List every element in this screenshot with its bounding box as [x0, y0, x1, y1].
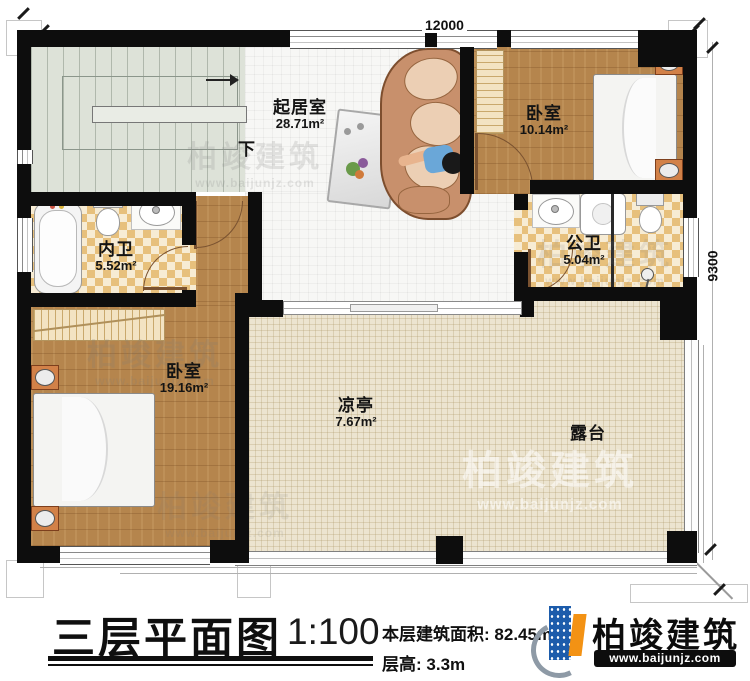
sofa-armrest	[398, 186, 450, 214]
wall	[460, 47, 474, 194]
floor-height-line: 层高: 3.3m	[382, 650, 465, 675]
wall	[497, 30, 511, 47]
wall	[17, 293, 196, 307]
window	[17, 218, 33, 272]
wall	[235, 293, 249, 540]
room-label-terrace: 露台	[548, 424, 628, 443]
wall	[210, 540, 249, 563]
wall	[514, 194, 528, 210]
terrace-outer-line-1	[40, 567, 697, 568]
door-leaf	[475, 133, 478, 190]
room-name: 内卫	[72, 240, 160, 259]
table-flowers	[355, 170, 364, 179]
floor-area-label: 本层建筑面积:	[382, 625, 490, 644]
stair-handrail	[92, 106, 247, 123]
floor-height-value: 3.3m	[426, 655, 465, 674]
floor-height-label: 层高:	[382, 655, 422, 674]
room-area: 28.71m²	[252, 117, 348, 132]
wall	[182, 192, 196, 245]
wall	[17, 47, 31, 150]
corner-annotation-box-terrace	[630, 584, 748, 603]
nightstand-lamp-icon	[35, 510, 55, 527]
title-underline-thick	[48, 656, 373, 661]
wall	[17, 192, 196, 206]
wall	[17, 272, 31, 546]
room-name: 凉亭	[308, 396, 404, 415]
dimension-top: 12000	[422, 17, 467, 33]
bath-public-door-threshold	[514, 210, 528, 252]
terrace-post	[667, 531, 697, 563]
room-name: 卧室	[496, 104, 592, 123]
dimension-line-right	[712, 42, 713, 560]
room-area: 5.52m²	[72, 259, 160, 274]
wall	[514, 287, 683, 301]
terrace-outer-line-2	[120, 573, 697, 574]
room-label-bath-inner: 内卫 5.52m²	[72, 240, 160, 274]
window	[511, 30, 638, 49]
room-name: 卧室	[136, 362, 232, 381]
nightstand-lamp-icon	[35, 369, 55, 386]
room-label-bedroom-top: 卧室 10.14m²	[496, 104, 592, 138]
wall	[235, 300, 283, 317]
title-underline-thin	[48, 664, 373, 666]
room-area: 7.67m²	[308, 415, 404, 430]
dimension-tick	[17, 7, 30, 20]
room-label-bedroom-left: 卧室 19.16m²	[136, 362, 232, 396]
stairs-down-label: 下	[234, 140, 260, 159]
nightstand	[655, 159, 683, 182]
room-name: 起居室	[252, 98, 348, 117]
terrace-post	[436, 536, 463, 564]
room-name: 露台	[548, 424, 628, 443]
wall	[660, 301, 697, 340]
wall	[248, 192, 262, 314]
window	[290, 30, 425, 49]
dimension-right: 9300	[705, 247, 721, 284]
room-label-living: 起居室 28.71m²	[252, 98, 348, 132]
wall	[530, 180, 683, 194]
terrace-railing-right	[684, 340, 699, 553]
toilet-bowl	[639, 206, 662, 233]
stair-direction-arrow	[206, 79, 232, 81]
nightstand-lamp-icon	[659, 163, 679, 178]
sliding-door-panel	[350, 304, 438, 312]
logo-building-icon	[549, 606, 571, 660]
floor-plan-page: 柏竣建筑 www.baijunjz.com 柏竣建筑 www.baijunjz.…	[0, 0, 750, 681]
wall	[17, 30, 290, 47]
table-cup	[357, 123, 364, 130]
toilet-bowl	[96, 208, 120, 236]
window	[17, 150, 33, 164]
sink-drain	[551, 205, 559, 213]
terrace-outer-line-right	[703, 345, 704, 563]
wall	[520, 300, 534, 317]
bed-blanket	[622, 78, 656, 178]
toilet-tank	[636, 193, 664, 206]
room-name: 公卫	[540, 234, 628, 253]
dimension-tick	[704, 543, 717, 556]
room-area: 10.14m²	[496, 123, 592, 138]
room-area: 19.16m²	[136, 381, 232, 396]
stair-arrow-head-icon	[230, 74, 239, 86]
wall	[17, 164, 31, 218]
room-label-bath-public: 公卫 5.04m²	[540, 234, 628, 268]
plan-scale: 1:100	[287, 611, 380, 653]
wall	[638, 30, 697, 67]
window	[60, 546, 210, 565]
brand-url: www.baijunjz.com	[594, 650, 736, 667]
nightstand	[31, 506, 59, 531]
room-area: 5.04m²	[540, 253, 628, 268]
table-flowers	[358, 158, 368, 168]
wall	[683, 277, 697, 301]
nightstand	[31, 365, 59, 390]
window	[683, 218, 699, 277]
wall	[17, 546, 60, 563]
door-leaf	[143, 287, 187, 290]
closet-hanger-rail	[33, 309, 165, 341]
door-leaf	[528, 249, 531, 291]
room-label-pavilion: 凉亭 7.67m²	[308, 396, 404, 430]
stairs-direction-text: 下	[234, 140, 260, 159]
terrace-railing-bottom	[235, 551, 697, 566]
corner-annotation-box-bottom-left	[6, 560, 44, 598]
wall	[683, 67, 697, 218]
sink-drain	[152, 206, 160, 214]
